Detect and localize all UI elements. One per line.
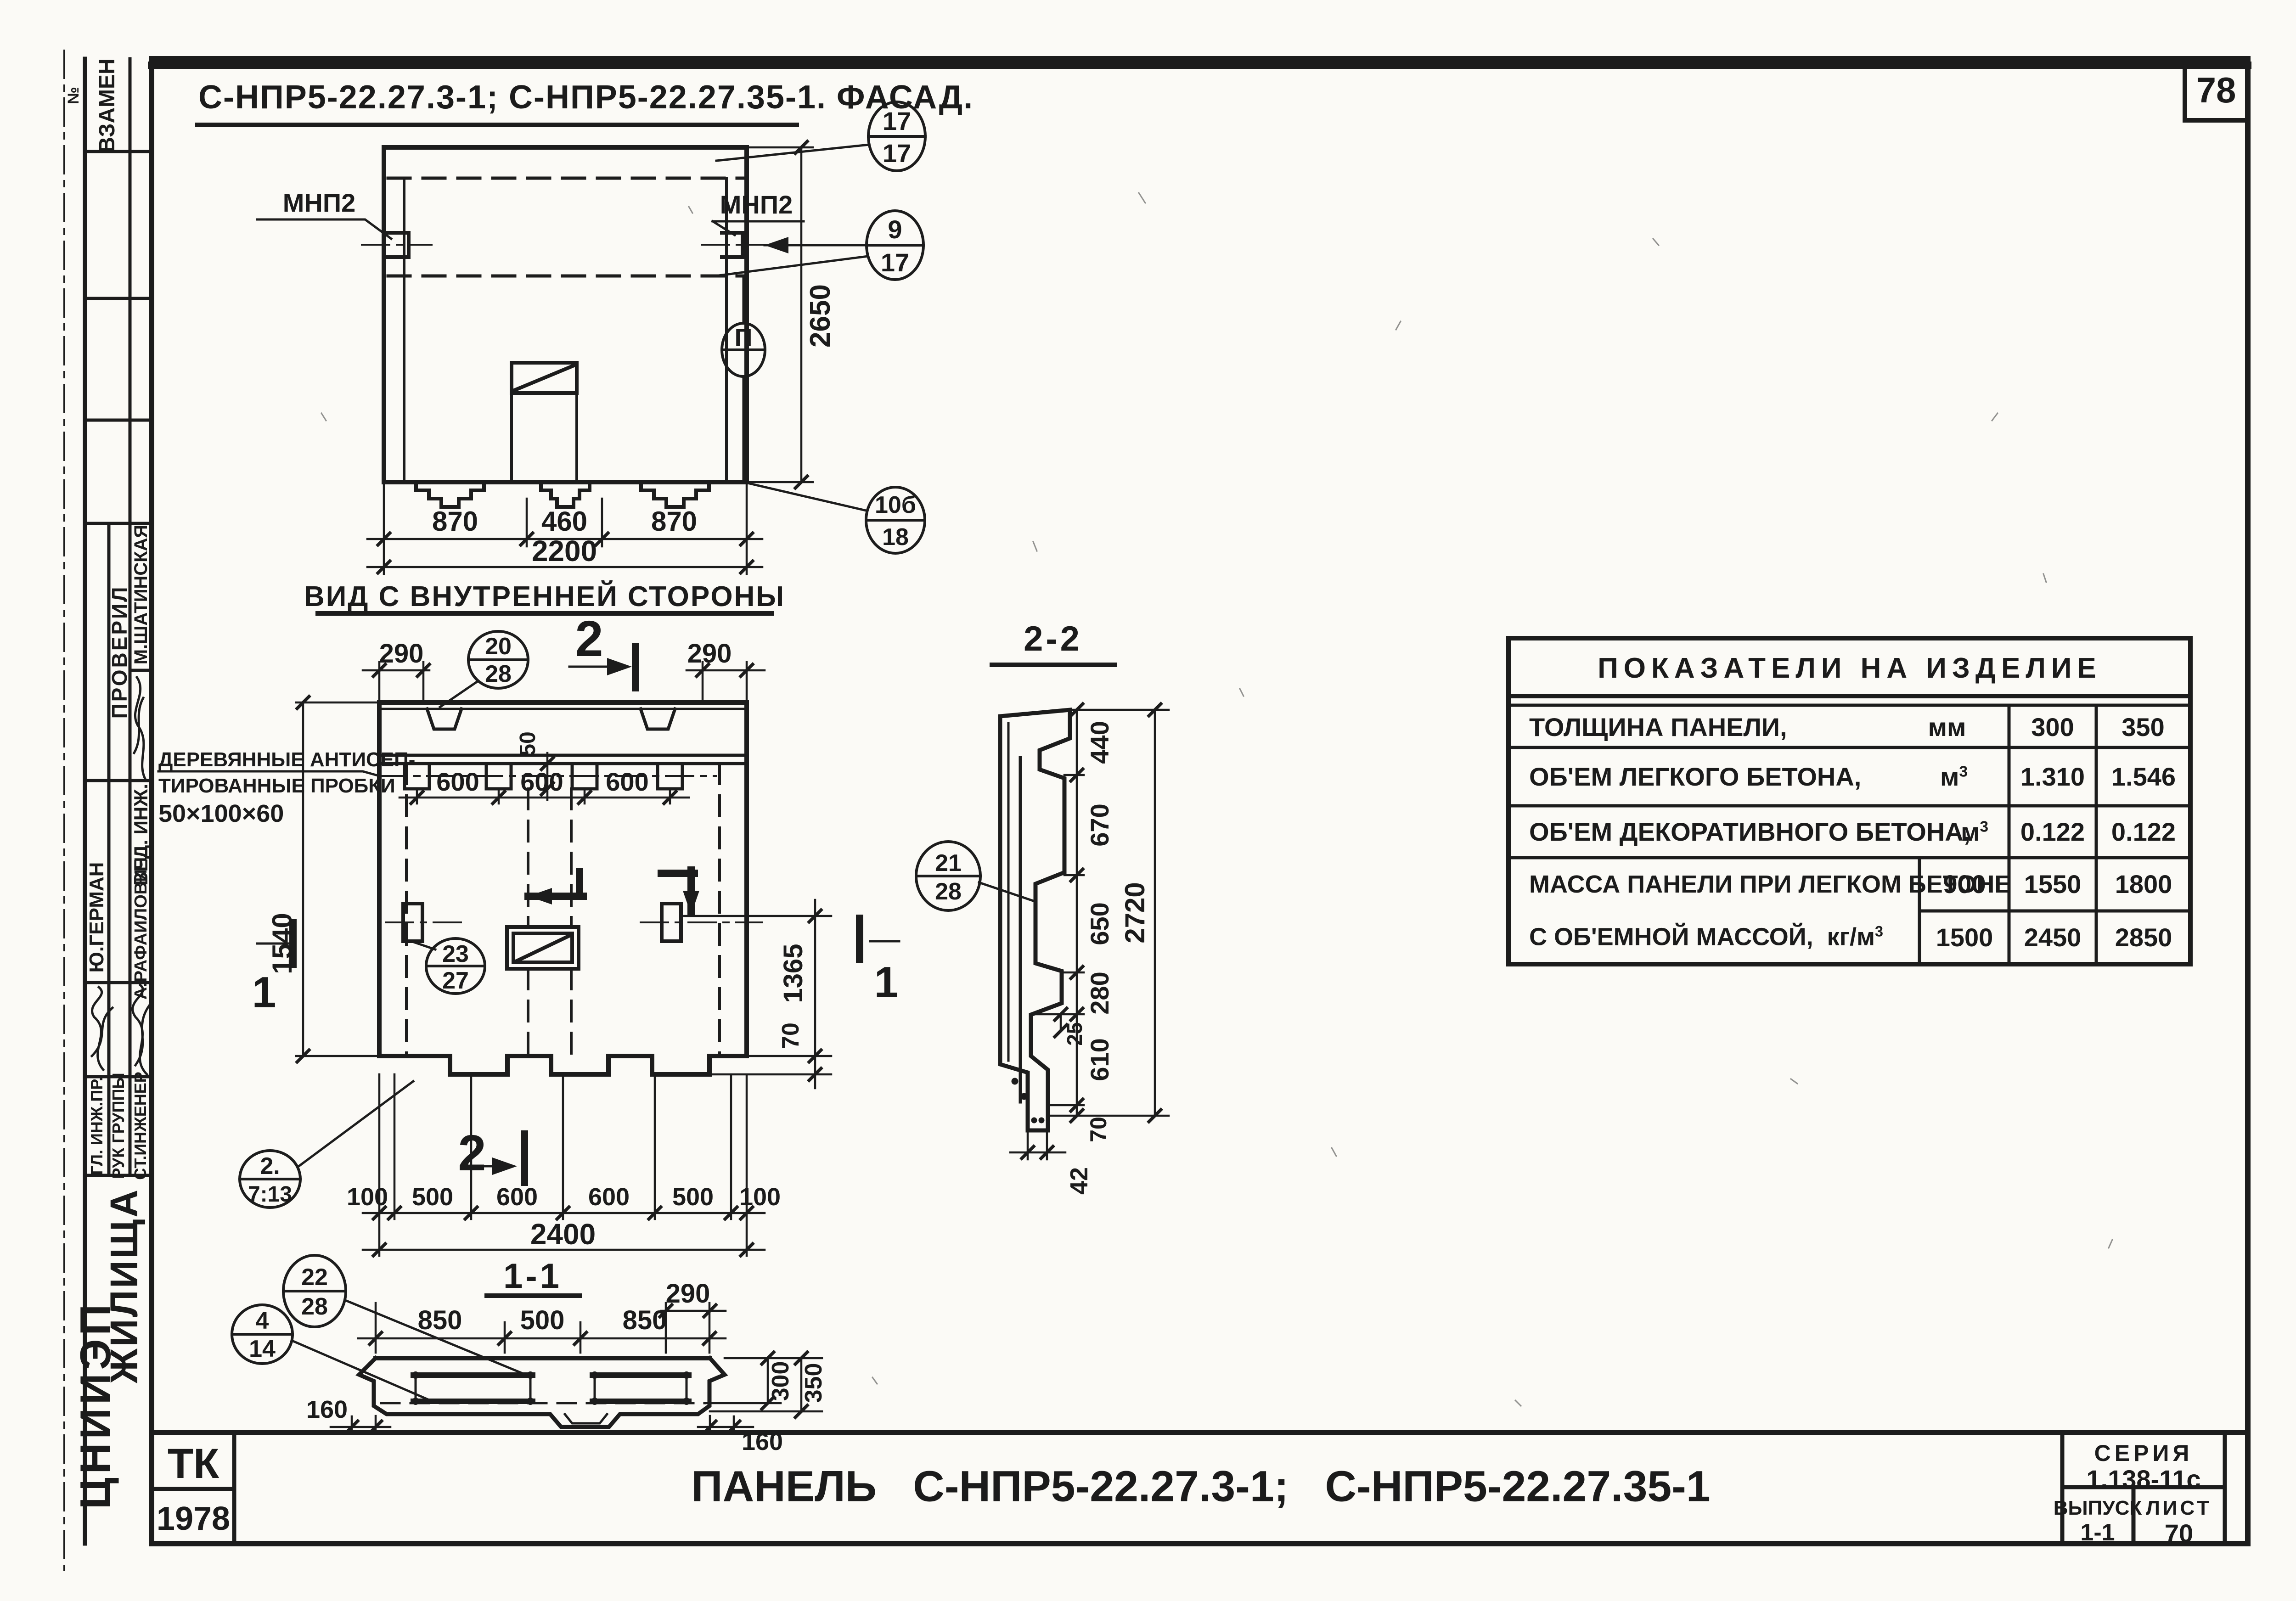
unit-m: м [1940,762,1959,791]
table-row2-v2: 1.546 [2111,764,2176,790]
dim-100-l: 100 [347,1185,388,1209]
dim-2650: 2650 [806,284,835,348]
stamp-role-gl-inzh: ГЛ. ИНЖ.ПР. [89,1077,105,1175]
unit-sup: 3 [1959,763,1968,780]
dim-350: 350 [802,1363,826,1403]
callout-9-num: 9 [888,217,902,242]
table-row3-v1: 0.122 [2020,819,2085,845]
callout-713-den: 7:13 [248,1184,292,1206]
dim-600-3: 600 [606,769,648,795]
dim-25: 25 [1064,1022,1085,1045]
table-mass-label1: МАССА ПАНЕЛИ ПРИ ЛЕГКОМ БЕТОНЕ [1529,872,2011,897]
table-row3-label: ОБ'ЕМ ДЕКОРАТИВНОГО БЕТОНА, [1529,819,1970,845]
page-number: 78 [2196,72,2236,108]
callout-2327-num: 23 [442,942,469,966]
dim-670: 670 [1087,803,1113,846]
table-title: ПОКАЗАТЕЛИ НА ИЗДЕЛИЕ [1598,654,2102,683]
dim-50: 50 [517,731,539,756]
dim-300: 300 [769,1361,793,1401]
dim-850-right: 850 [623,1307,667,1334]
table-row2-unit: м3 [1940,764,1968,790]
table-row3-v2: 0.122 [2111,819,2176,845]
dim-2720: 2720 [1121,882,1149,943]
dim-2400: 2400 [530,1219,596,1249]
issue-label: ВЫПУСК [2054,1498,2142,1518]
dim-290-left: 290 [379,640,424,667]
callout-2028-den: 28 [485,662,512,686]
dim-460: 460 [541,508,587,535]
callout-2228-num: 22 [301,1265,328,1289]
dim-600-r: 600 [588,1185,630,1209]
section-mark-2-bottom: 2 [458,1128,486,1179]
stamp-role-ruk-gruppy: РУК ГРУППЫ [110,1073,127,1179]
tk-label: ТК [168,1443,219,1485]
table-mass-r2v2: 2850 [2115,925,2172,950]
table-row2-v1: 1.310 [2020,764,2085,790]
dim-1540: 1540 [269,913,296,974]
dim-290-right: 290 [687,640,732,667]
issue-value: 1-1 [2080,1521,2115,1545]
stamp-proveril: ПРОВЕРИЛ [109,585,130,719]
callout-2228-den: 28 [301,1295,328,1319]
table-mass-label2: С ОБ'ЕМНОЙ МАССОЙ, кг/м3 [1529,924,1883,949]
dim-1365: 1365 [780,944,807,1003]
dim-42: 42 [1067,1167,1092,1195]
table-mass-r2v1: 2450 [2024,925,2082,950]
table-row1-label: ТОЛЩИНА ПАНЕЛИ, [1529,714,1787,740]
stamp-name-german: Ю.ГЕРМАН [87,862,107,973]
mnp2-label-right: МНП2 [720,192,793,218]
dim-870-right: 870 [651,508,697,535]
section-mark-1-right: 1 [874,961,899,1005]
dim-600-1: 600 [436,769,479,795]
dim-160-right: 160 [742,1429,783,1454]
stamp-name-rafailovich: А.РАФАИЛОВИЧ [132,857,150,1000]
stamp-name-shatinskaya: М.ШАТИНСКАЯ [132,525,150,665]
dim-600-l: 600 [496,1185,538,1209]
section-mark-2-top: 2 [575,614,603,664]
dim-610: 610 [1087,1038,1113,1081]
stamp-org-logo: ЦНИИЭП [74,1301,117,1509]
drawing-title: С-НПР5-22.27.3-1; С-НПР5-22.27.35-1. ФАС… [198,81,974,114]
drawing-linework [0,0,2296,1601]
table-mass-d2: 1500 [1936,925,1993,950]
dim-70-s22: 70 [1087,1117,1110,1142]
dim-650: 650 [1087,902,1113,945]
sheet-label: ЛИСТ [2146,1498,2212,1518]
mass-label2-sup: 3 [1875,923,1883,940]
dim-70-inner: 70 [779,1022,803,1049]
footer-title: ПАНЕЛЬ С-НПР5-22.27.3-1; С-НПР5-22.27.35… [691,1465,1710,1509]
callout-414-den: 14 [249,1337,276,1361]
callout-10b-num: 10б [875,493,916,517]
table-mass-d1: 900 [1943,871,1986,897]
axis-mark-p: П [735,325,753,350]
callout-17-den: 17 [883,140,911,166]
callout-2327-den: 27 [442,969,469,993]
tk-year: 1978 [157,1502,230,1535]
table-row2-label: ОБ'ЕМ ЛЕГКОГО БЕТОНА, [1529,764,1861,790]
underlines [197,125,1115,1296]
callout-2128-num: 21 [935,851,962,875]
table-row1-v1: 300 [2031,714,2074,740]
table-mass-r1v2: 1800 [2115,871,2172,897]
sheet-frame [64,51,2248,1570]
section-2-2 [1000,710,1070,1130]
mass-label2-text: С ОБ'ЕМНОЙ МАССОЙ, кг/м [1529,923,1875,951]
note-line2: ТИРОВАННЫЕ ПРОБКИ [158,776,395,796]
callout-414-num: 4 [256,1309,269,1333]
callout-2028-num: 20 [485,635,512,658]
facade-view [362,147,781,507]
unit-m: м [1961,817,1980,846]
callout-2128-den: 28 [935,880,962,904]
dim-440: 440 [1087,721,1113,764]
dim-280: 280 [1087,972,1113,1014]
series-label: СЕРИЯ [2094,1442,2193,1465]
unit-sup: 3 [1980,818,1988,835]
dim-100-r: 100 [739,1185,781,1209]
stamp-role-st-inzhener: СТ.ИНЖЕНЕР [132,1072,149,1180]
dim-500-r: 500 [672,1185,714,1209]
table-row1-v2: 350 [2122,714,2164,740]
section-mark-1-left: 1 [252,971,276,1015]
dim-160-left: 160 [306,1397,348,1422]
inner-view [379,702,762,1074]
dim-2200: 2200 [532,536,597,566]
section-2-2-title: 2-2 [1024,622,1082,657]
dim-500-mid: 500 [520,1307,565,1334]
table-row1-unit: мм [1928,714,1966,740]
dim-850-left: 850 [418,1307,462,1334]
blueprint-sheet: С-НПР5-22.27.3-1; С-НПР5-22.27.35-1. ФАС… [0,0,2296,1601]
dim-600-2: 600 [520,769,563,795]
stamp-no: № [66,87,81,104]
callout-10b-den: 18 [882,525,909,549]
callout-17-num: 17 [883,108,911,134]
callout-circles [232,102,980,1364]
sheet-value: 70 [2165,1521,2193,1546]
section-1-1-title: 1-1 [503,1259,562,1294]
table-grid [1508,638,2190,964]
callout-9-den: 17 [881,250,909,275]
dim-500-l: 500 [412,1185,453,1209]
stamp-vzamen: ВЗАМЕН [96,58,118,152]
note-line3: 50×100×60 [158,801,284,826]
inner-view-title: ВИД С ВНУТРЕННЕЙ СТОРОНЫ [304,583,785,611]
table-mass-r1v1: 1550 [2024,871,2082,897]
series-value: 1.138-11с [2086,1466,2200,1492]
dim-290-s11: 290 [666,1281,710,1307]
table-row3-unit: м3 [1961,819,1988,845]
dim-870-left: 870 [432,508,478,535]
mnp2-label-left: МНП2 [283,190,355,216]
callout-713-num: 2. [260,1154,280,1178]
note-line1: ДЕРЕВЯННЫЕ АНТИСЕП- [158,750,415,770]
